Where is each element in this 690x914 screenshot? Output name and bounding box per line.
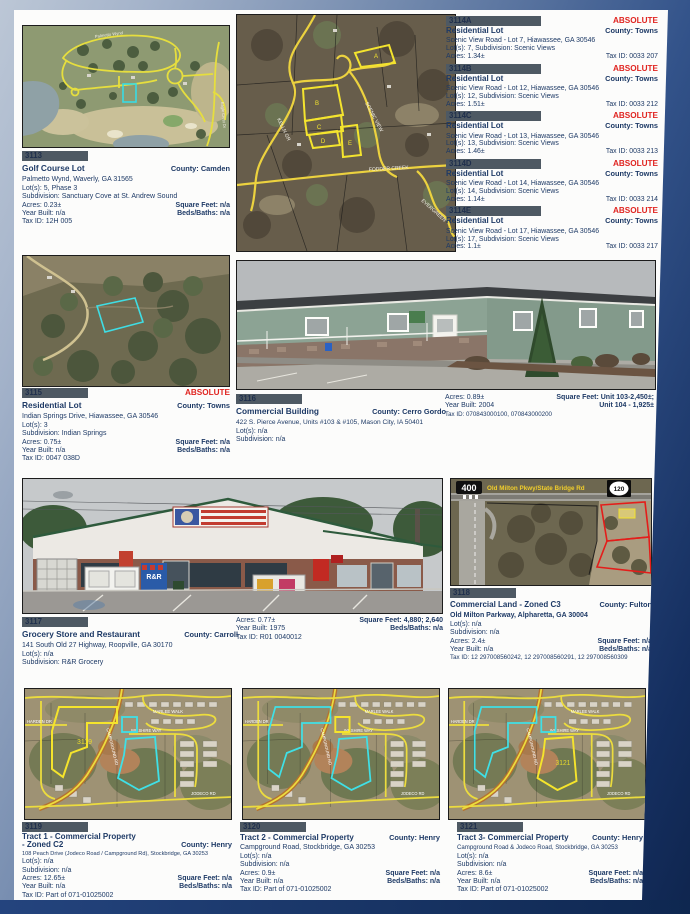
acres-line: Acres: 0.23± (22, 202, 61, 210)
lots-line: Lot(s): n/a (236, 428, 446, 436)
year-line: Year Built: 1975 (236, 625, 346, 633)
year-line: Year Built: n/a (22, 210, 65, 218)
tax-line: Tax ID: Part of 071-01025002 (22, 892, 232, 900)
catalog-page-screenshot: Palmetto Wynd Eagle Crest Dr 3113 Golf C… (0, 0, 690, 914)
listing-id-bar: 3119 (22, 822, 88, 832)
listing-id-bar: 3114D (446, 159, 541, 169)
acres-line: Acres: 1.34± (446, 53, 485, 61)
acres-line: Acres: 2.4± (450, 638, 485, 646)
beds-line: Beds/Baths: n/a (333, 625, 443, 633)
county: County: Towns (605, 27, 658, 35)
acres-line: Acres: 1.1± (446, 243, 481, 251)
subdivision-line: Subdivision: n/a (457, 861, 643, 869)
tax-line: Tax ID: 12H 005 (22, 218, 230, 226)
beds-line: Beds/Baths: n/a (387, 878, 440, 886)
tax-line: Tax ID: 0033 207 (606, 53, 658, 61)
listing-3114E: 3114EABSOLUTE Residential LotCounty: Tow… (446, 206, 658, 254)
address-line: 141 South Old 27 Highway, Roopville, GA … (22, 642, 238, 650)
parcel-tag-3121: 3121 (556, 760, 571, 767)
lots-line: Lot(s): 14, Subdivision: Scenic Views (446, 188, 658, 196)
sqft-line: Square Feet: n/a (176, 439, 230, 447)
listing-3114C: 3114CABSOLUTE Residential LotCounty: Tow… (446, 111, 658, 159)
listing-id-bar: 3121 (457, 822, 523, 832)
county: County: Towns (605, 122, 658, 130)
golf-course-aerial-image: Palmetto Wynd Eagle Crest Dr (22, 25, 230, 148)
listing-id-bar: 3114E (446, 206, 541, 216)
acres-line: Acres: 8.6± (457, 870, 492, 878)
catalog-page: Palmetto Wynd Eagle Crest Dr 3113 Golf C… (14, 10, 668, 900)
listing-title: Residential Lot (446, 170, 503, 178)
listing-3118: 3118 Commercial Land - Zoned C3 County: … (450, 588, 652, 663)
lots-line: Lot(s): 12, Subdivision: Scenic Views (446, 93, 658, 101)
parcel-label-e: E (348, 141, 352, 147)
listing-title: Tract 2 - Commercial Property (240, 834, 354, 842)
beds-line: Beds/Baths: n/a (179, 883, 232, 891)
address-line: Old Milton Parkway, Alpharetta, GA 30004 (450, 612, 652, 620)
listing-title: Residential Lot (446, 75, 503, 83)
sqft-line: Square Feet: n/a (386, 870, 440, 878)
highway-400-shield: 400 (461, 483, 476, 493)
address-line: Palmetto Wynd, Waverly, GA 31565 (22, 176, 230, 184)
listing-id-bar: 3117 (22, 617, 88, 627)
lots-line: Lot(s): 13, Subdivision: Scenic Views (446, 140, 658, 148)
listing-3114A: 3114AABSOLUTE Residential LotCounty: Tow… (446, 16, 658, 64)
lots-line: Lot(s): n/a (457, 853, 643, 861)
lots-line: Lot(s): 17, Subdivision: Scenic Views (446, 236, 658, 244)
listing-title: Residential Lot (446, 27, 503, 35)
subdivision-line: Subdivision: Indian Springs (22, 430, 230, 438)
scenic-views-parcel-map-image: A B C D E KELLN GR SCENIC VIEW FODDER CR… (236, 14, 456, 252)
tax-line: Tax ID: 0033 217 (606, 243, 658, 251)
county: County: Henry (389, 834, 440, 842)
highway-120-shield: 120 (614, 486, 625, 493)
county: County: Towns (177, 402, 230, 410)
parcel-label-d: D (321, 139, 326, 145)
acres-line: Acres: 1.51± (446, 101, 485, 109)
sqft-line: Square Feet: n/a (589, 870, 643, 878)
parcel-label-c: C (317, 125, 322, 131)
county: County: Towns (605, 217, 658, 225)
listing-3116: 3116 Commercial Building County: Cerro G… (236, 394, 654, 464)
listing-id-bar: 3113 (22, 151, 88, 161)
absolute-badge: ABSOLUTE (185, 388, 230, 398)
address-line: 108 Peach Drive (Jodeco Road / Campgroun… (22, 850, 232, 858)
county: County: Henry (592, 834, 643, 842)
county: County: Camden (171, 165, 230, 173)
lots-line: Lot(s): 7, Subdivision: Scenic Views (446, 45, 658, 53)
lots-line: Lot(s): 5, Phase 3 (22, 185, 230, 193)
county: County: Cerro Gordo (372, 408, 446, 416)
listing-title: Commercial Land - Zoned C3 (450, 601, 561, 609)
tax-line: Tax ID: R01 0040012 (236, 634, 346, 642)
listing-3114D: 3114DABSOLUTE Residential LotCounty: Tow… (446, 159, 658, 207)
sqft-line: Square Feet: 4,880; 2,640 (333, 617, 443, 625)
old-milton-parcel-map-image: 400 Old Milton Pkwy/State Bridge Rd 120 (450, 478, 652, 586)
acres-line: Acres: 0.9± (240, 870, 275, 878)
listing-title-line2: - Zoned C2 (22, 841, 136, 849)
tax-line: Tax ID: 0033 212 (606, 101, 658, 109)
absolute-badge: ABSOLUTE (613, 206, 658, 216)
subdivision-line: Subdivision: n/a (240, 861, 440, 869)
listing-title: Residential Lot (22, 401, 81, 409)
listing-title: Golf Course Lot (22, 164, 85, 172)
absolute-badge: ABSOLUTE (613, 64, 658, 74)
tract1-parcel-map-image: HARDEN DR MARLEE WALK WILSHIRE WAY JODEC… (24, 688, 232, 820)
tax-line: Tax ID: 070843000100, 070843000200 (445, 411, 571, 419)
acres-line: Acres: 1.46± (446, 148, 485, 156)
listing-3115: 3115ABSOLUTE Residential Lot County: Tow… (22, 388, 230, 464)
listing-3119: 3119 Tract 1 - Commercial Property - Zon… (22, 822, 232, 900)
listing-id-bar: 3120 (240, 822, 306, 832)
tax-line: Tax ID: 0033 214 (606, 196, 658, 204)
page-bottom-band (0, 900, 690, 914)
listing-title: Commercial Building (236, 407, 319, 415)
year-line: Year Built: n/a (22, 447, 65, 455)
address-line: Scenic View Road - Lot 12, Hiawassee, GA… (446, 85, 658, 93)
tax-line: Tax ID: Part of 071-01025002 (457, 886, 643, 894)
address-line: Scenic View Road - Lot 17, Hiawassee, GA… (446, 228, 658, 236)
parcel-tag-3119: 3119 (77, 739, 92, 746)
sqft-line: Square Feet: n/a (176, 202, 230, 210)
subdivision-line: Subdivision: Sanctuary Cove at St. Andre… (22, 193, 230, 201)
acres-line: Acres: 0.77± (236, 617, 346, 625)
lots-line: Lot(s): n/a (450, 621, 652, 629)
absolute-badge: ABSOLUTE (613, 159, 658, 169)
beds-line: Beds/Baths: n/a (177, 210, 230, 218)
lots-line: Lot(s): n/a (240, 853, 440, 861)
county: County: Carroll (184, 631, 238, 639)
county: County: Towns (605, 75, 658, 83)
year-line: Year Built: n/a (240, 878, 283, 886)
listing-title: Tract 3- Commercial Property (457, 834, 569, 842)
indian-springs-aerial-image (22, 255, 230, 387)
county: County: Fulton (599, 601, 652, 609)
listing-title: Residential Lot (446, 217, 503, 225)
year-line: Year Built: n/a (22, 883, 65, 891)
address-line: Campground Road, Stockbridge, GA 30253 (240, 844, 440, 852)
address-line: Scenic View Road - Lot 14, Hiawassee, GA… (446, 180, 658, 188)
listing-3114B: 3114BABSOLUTE Residential LotCounty: Tow… (446, 64, 658, 112)
rr-sign-text: R&R (146, 574, 161, 581)
county: County: Henry (181, 841, 232, 849)
tax-line: Tax ID: Part of 071-01025002 (240, 886, 440, 894)
listing-3120: 3120 Tract 2 - Commercial Property Count… (240, 822, 440, 895)
listing-id-bar: 3118 (450, 588, 516, 598)
listing-id-bar: 3114B (446, 64, 541, 74)
address-line: Indian Springs Drive, Hiawassee, GA 3054… (22, 413, 230, 421)
acres-line: Acres: 0.75± (22, 439, 61, 447)
acres-line: Acres: 12.65± (22, 875, 65, 883)
tract2-parcel-map-image (242, 688, 440, 820)
grocery-store-photo: ICE R&R (22, 478, 443, 614)
listing-3113: 3113 Golf Course Lot County: Camden Palm… (22, 151, 230, 227)
lots-line: Lot(s): 3 (22, 422, 230, 430)
sqft-line-1: Square Feet: Unit 103-2,450±; (534, 394, 654, 402)
address-line: 422 S. Pierce Avenue, Units #103 & #105,… (236, 419, 446, 427)
road-label-old-milton: Old Milton Pkwy/State Bridge Rd (487, 485, 585, 492)
county: County: Towns (605, 170, 658, 178)
listing-id-bar: 3116 (236, 394, 302, 404)
address-line: Scenic View Road - Lot 13, Hiawassee, GA… (446, 133, 658, 141)
listing-3117: 3117 Grocery Store and Restaurant County… (22, 617, 443, 689)
address-line: Campground Road & Jodeco Road, Stockbrid… (457, 844, 643, 852)
year-line: Year Built: n/a (450, 646, 493, 654)
parcel-label-b: B (315, 101, 319, 107)
absolute-badge: ABSOLUTE (613, 16, 658, 26)
sqft-line: Square Feet: n/a (178, 875, 232, 883)
subdivision-line: Subdivision: n/a (450, 629, 652, 637)
tax-line: Tax ID: 12 297008560242, 12 297008560291… (450, 654, 652, 662)
tract3-parcel-map-image: 3121 (448, 688, 646, 820)
listing-title: Grocery Store and Restaurant (22, 630, 140, 638)
subdivision-line: Subdivision: n/a (236, 436, 446, 444)
listing-id-bar: 3115 (22, 388, 88, 398)
tax-line: Tax ID: 0047 038D (22, 455, 230, 463)
subdivision-line: Subdivision: R&R Grocery (22, 659, 238, 667)
absolute-badge: ABSOLUTE (613, 111, 658, 121)
beds-line: Beds/Baths: n/a (177, 447, 230, 455)
listing-id-bar: 3114A (446, 16, 541, 26)
subdivision-line: Subdivision: n/a (22, 867, 232, 875)
scenic-lots-column: 3114AABSOLUTE Residential LotCounty: Tow… (446, 16, 658, 254)
listing-id-bar: 3114C (446, 111, 541, 121)
acres-line: Acres: 1.14± (446, 196, 485, 204)
lots-line: Lot(s): n/a (22, 651, 238, 659)
beds-line: Beds/Baths: n/a (599, 646, 652, 654)
listing-title: Residential Lot (446, 122, 503, 130)
beds-line: Beds/Baths: n/a (590, 878, 643, 886)
listing-3121: 3121 Tract 3- Commercial Property County… (457, 822, 643, 895)
lots-line: Lot(s): n/a (22, 858, 232, 866)
sqft-line: Square Feet: n/a (598, 638, 652, 646)
sqft-line-2: Unit 104 - 1,925± (534, 402, 654, 410)
tax-line: Tax ID: 0033 213 (606, 148, 658, 156)
parcel-label-a: A (374, 54, 378, 60)
commercial-building-photo (236, 260, 656, 390)
address-line: Scenic View Road - Lot 7, Hiawassee, GA … (446, 37, 658, 45)
year-line: Year Built: n/a (457, 878, 500, 886)
